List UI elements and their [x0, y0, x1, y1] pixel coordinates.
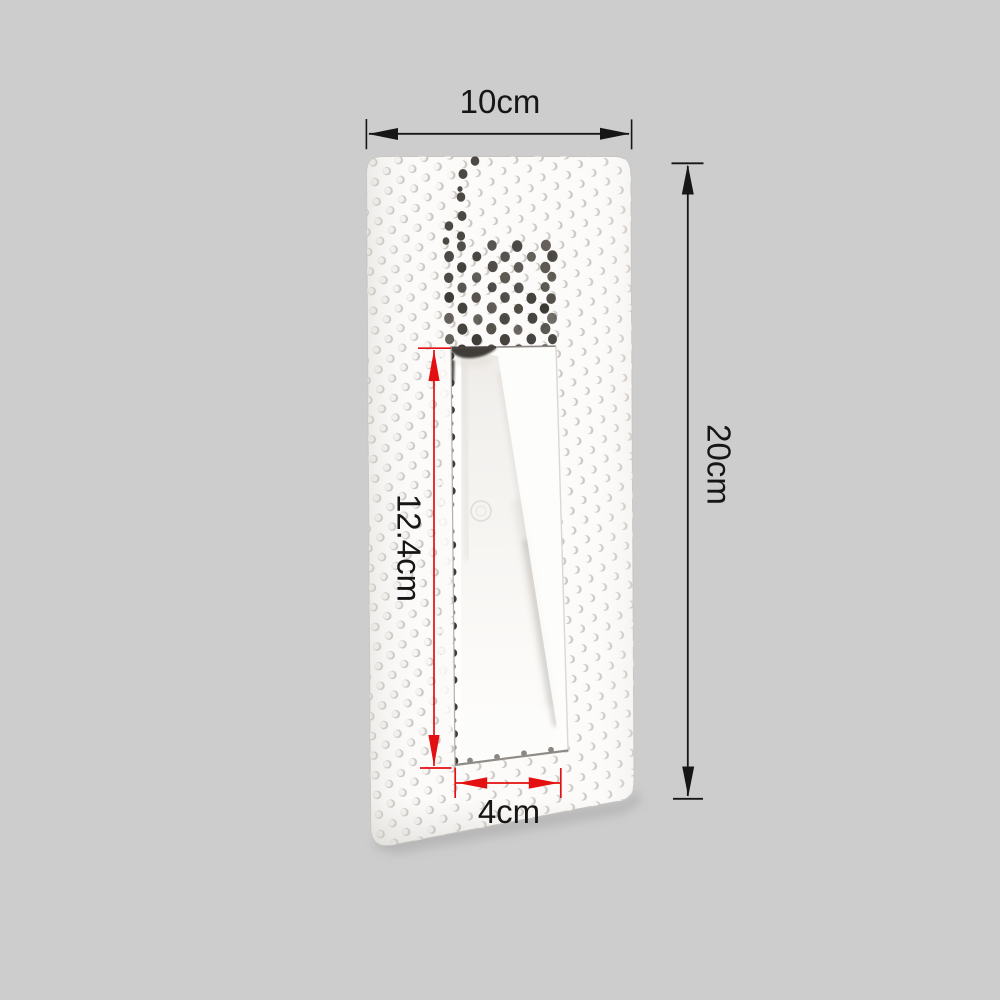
svg-text:4cm: 4cm — [478, 793, 540, 830]
svg-text:20cm: 20cm — [701, 424, 738, 505]
svg-text:12.4cm: 12.4cm — [391, 494, 428, 602]
svg-text:10cm: 10cm — [460, 83, 541, 120]
